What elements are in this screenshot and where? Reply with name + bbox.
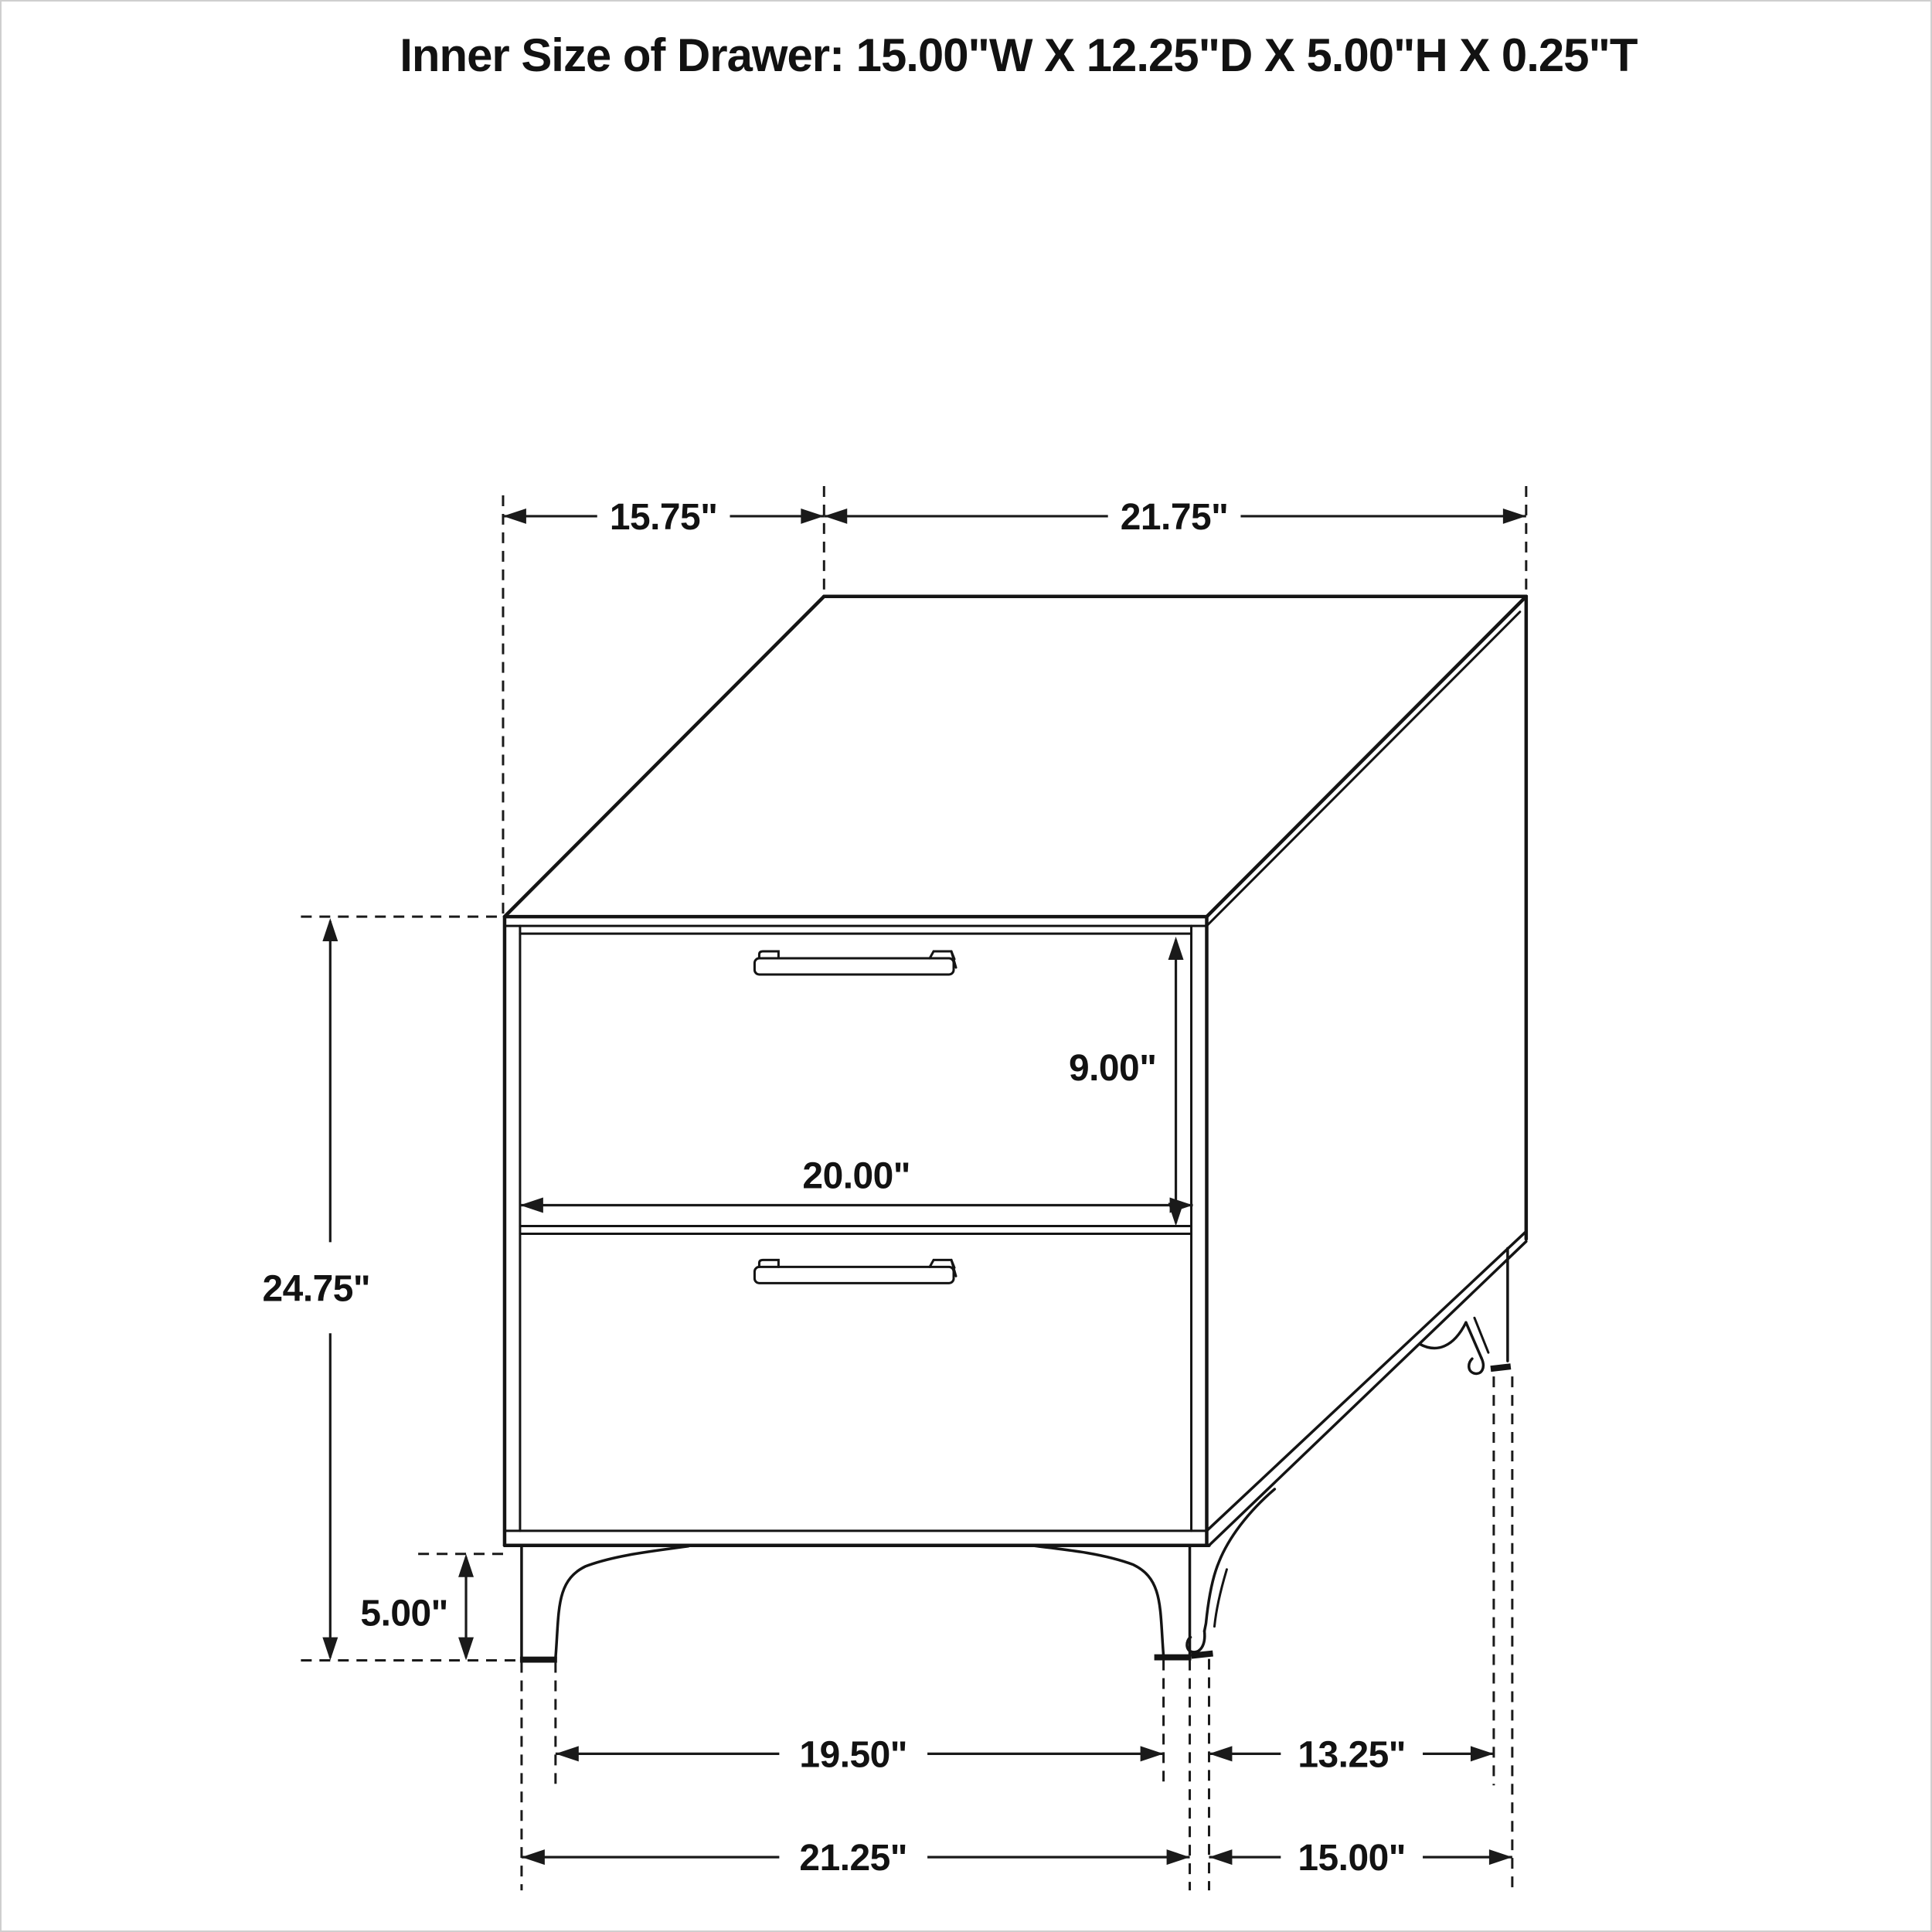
dim-label-front-feet-outer: 21.25" [799, 1838, 907, 1879]
dimension-front-feet-inner: 19.50" [556, 1734, 1164, 1775]
drawer-2-handle [754, 1260, 956, 1283]
dimension-drawer-width: 20.00" [520, 1156, 1193, 1213]
dimension-front-feet-outer: 21.25" [522, 1838, 1190, 1879]
dim-label-top-width: 21.75" [1121, 497, 1229, 538]
cabinet-front [505, 917, 1209, 1546]
dimension-side-feet-outer: 15.00" [1209, 1838, 1512, 1879]
dimension-side-feet-inner: 13.25" [1209, 1734, 1493, 1775]
front-right-leg [1031, 1546, 1192, 1658]
side-rear-leg [1420, 1248, 1511, 1373]
page-title: Inner Size of Drawer: 15.00"W X 12.25"D … [400, 29, 1638, 81]
dim-label-drawer-width: 20.00" [802, 1156, 910, 1197]
dimension-top-depth: 15.75" [503, 497, 824, 538]
dimension-drawer-height: 9.00" [1069, 937, 1184, 1226]
extension-lines [301, 486, 1526, 1890]
dim-label-side-feet-inner: 13.25" [1298, 1734, 1406, 1775]
drawer-1-handle [754, 951, 956, 975]
dim-label-leg-height: 5.00" [360, 1594, 447, 1634]
cabinet-top [505, 597, 1526, 926]
dimension-top-width: 21.75" [824, 497, 1526, 538]
cabinet-side [1207, 597, 1526, 1546]
dim-label-top-depth: 15.75" [610, 497, 718, 538]
furniture-dimension-diagram: Inner Size of Drawer: 15.00"W X 12.25"D … [2, 2, 1930, 1930]
diagram-page: Inner Size of Drawer: 15.00"W X 12.25"D … [0, 0, 1932, 1932]
side-front-leg [1187, 1489, 1274, 1656]
dim-label-front-feet-inner: 19.50" [799, 1734, 907, 1775]
dimension-overall-height: 24.75" [263, 918, 371, 1660]
dim-label-drawer-height: 9.00" [1069, 1048, 1156, 1089]
front-left-leg [520, 1546, 689, 1660]
dim-label-overall-height: 24.75" [263, 1268, 371, 1309]
dim-label-side-feet-outer: 15.00" [1298, 1838, 1406, 1879]
dimension-leg-height: 5.00" [360, 1554, 474, 1661]
